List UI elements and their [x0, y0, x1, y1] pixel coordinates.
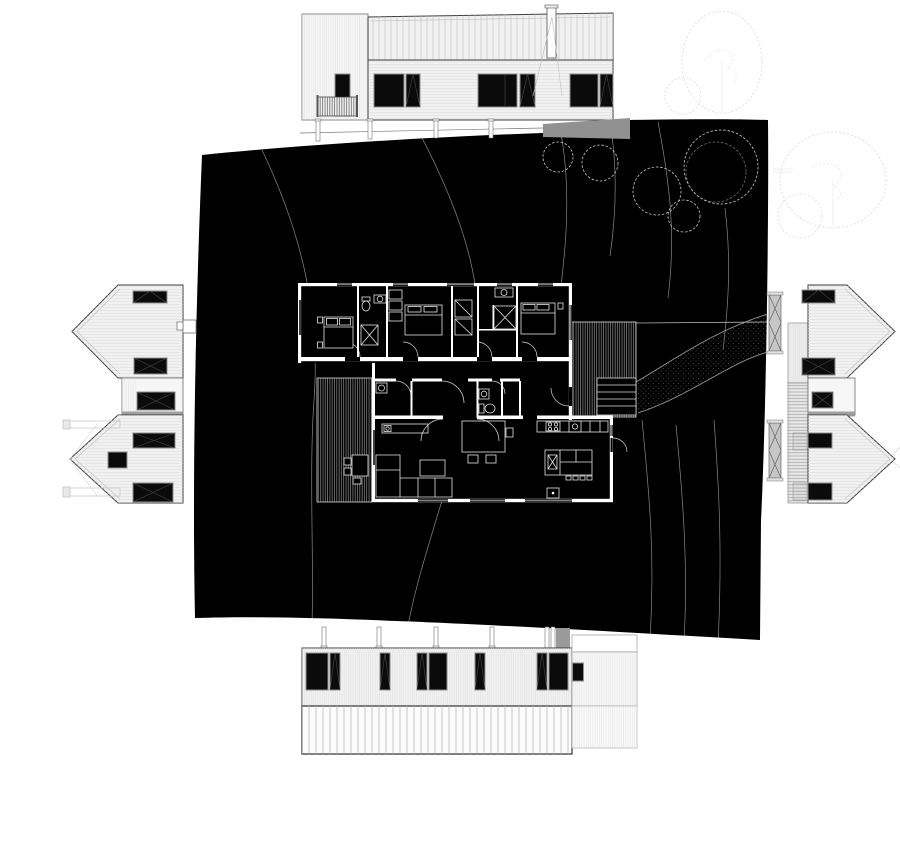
deck-stairs — [597, 378, 636, 415]
west-elevation-connector — [122, 378, 183, 417]
window-glass — [808, 483, 832, 500]
ground-wedge — [556, 628, 570, 648]
window-glass — [808, 433, 832, 448]
window-glass — [133, 291, 167, 303]
west-deck — [317, 378, 372, 502]
east-elevation-connector — [808, 378, 855, 417]
east-deck — [572, 322, 636, 417]
window-glass — [374, 74, 613, 107]
balcony-railing — [317, 95, 359, 117]
exterior-stair — [788, 323, 808, 503]
south-annex — [572, 635, 637, 748]
window-glass — [573, 663, 584, 681]
window-glass — [108, 452, 127, 468]
bed-symbol — [405, 305, 442, 335]
chimney — [183, 320, 196, 333]
drawing-canvas — [0, 0, 900, 865]
architectural-drawing-sheet — [0, 0, 900, 865]
window-glass — [802, 290, 835, 303]
